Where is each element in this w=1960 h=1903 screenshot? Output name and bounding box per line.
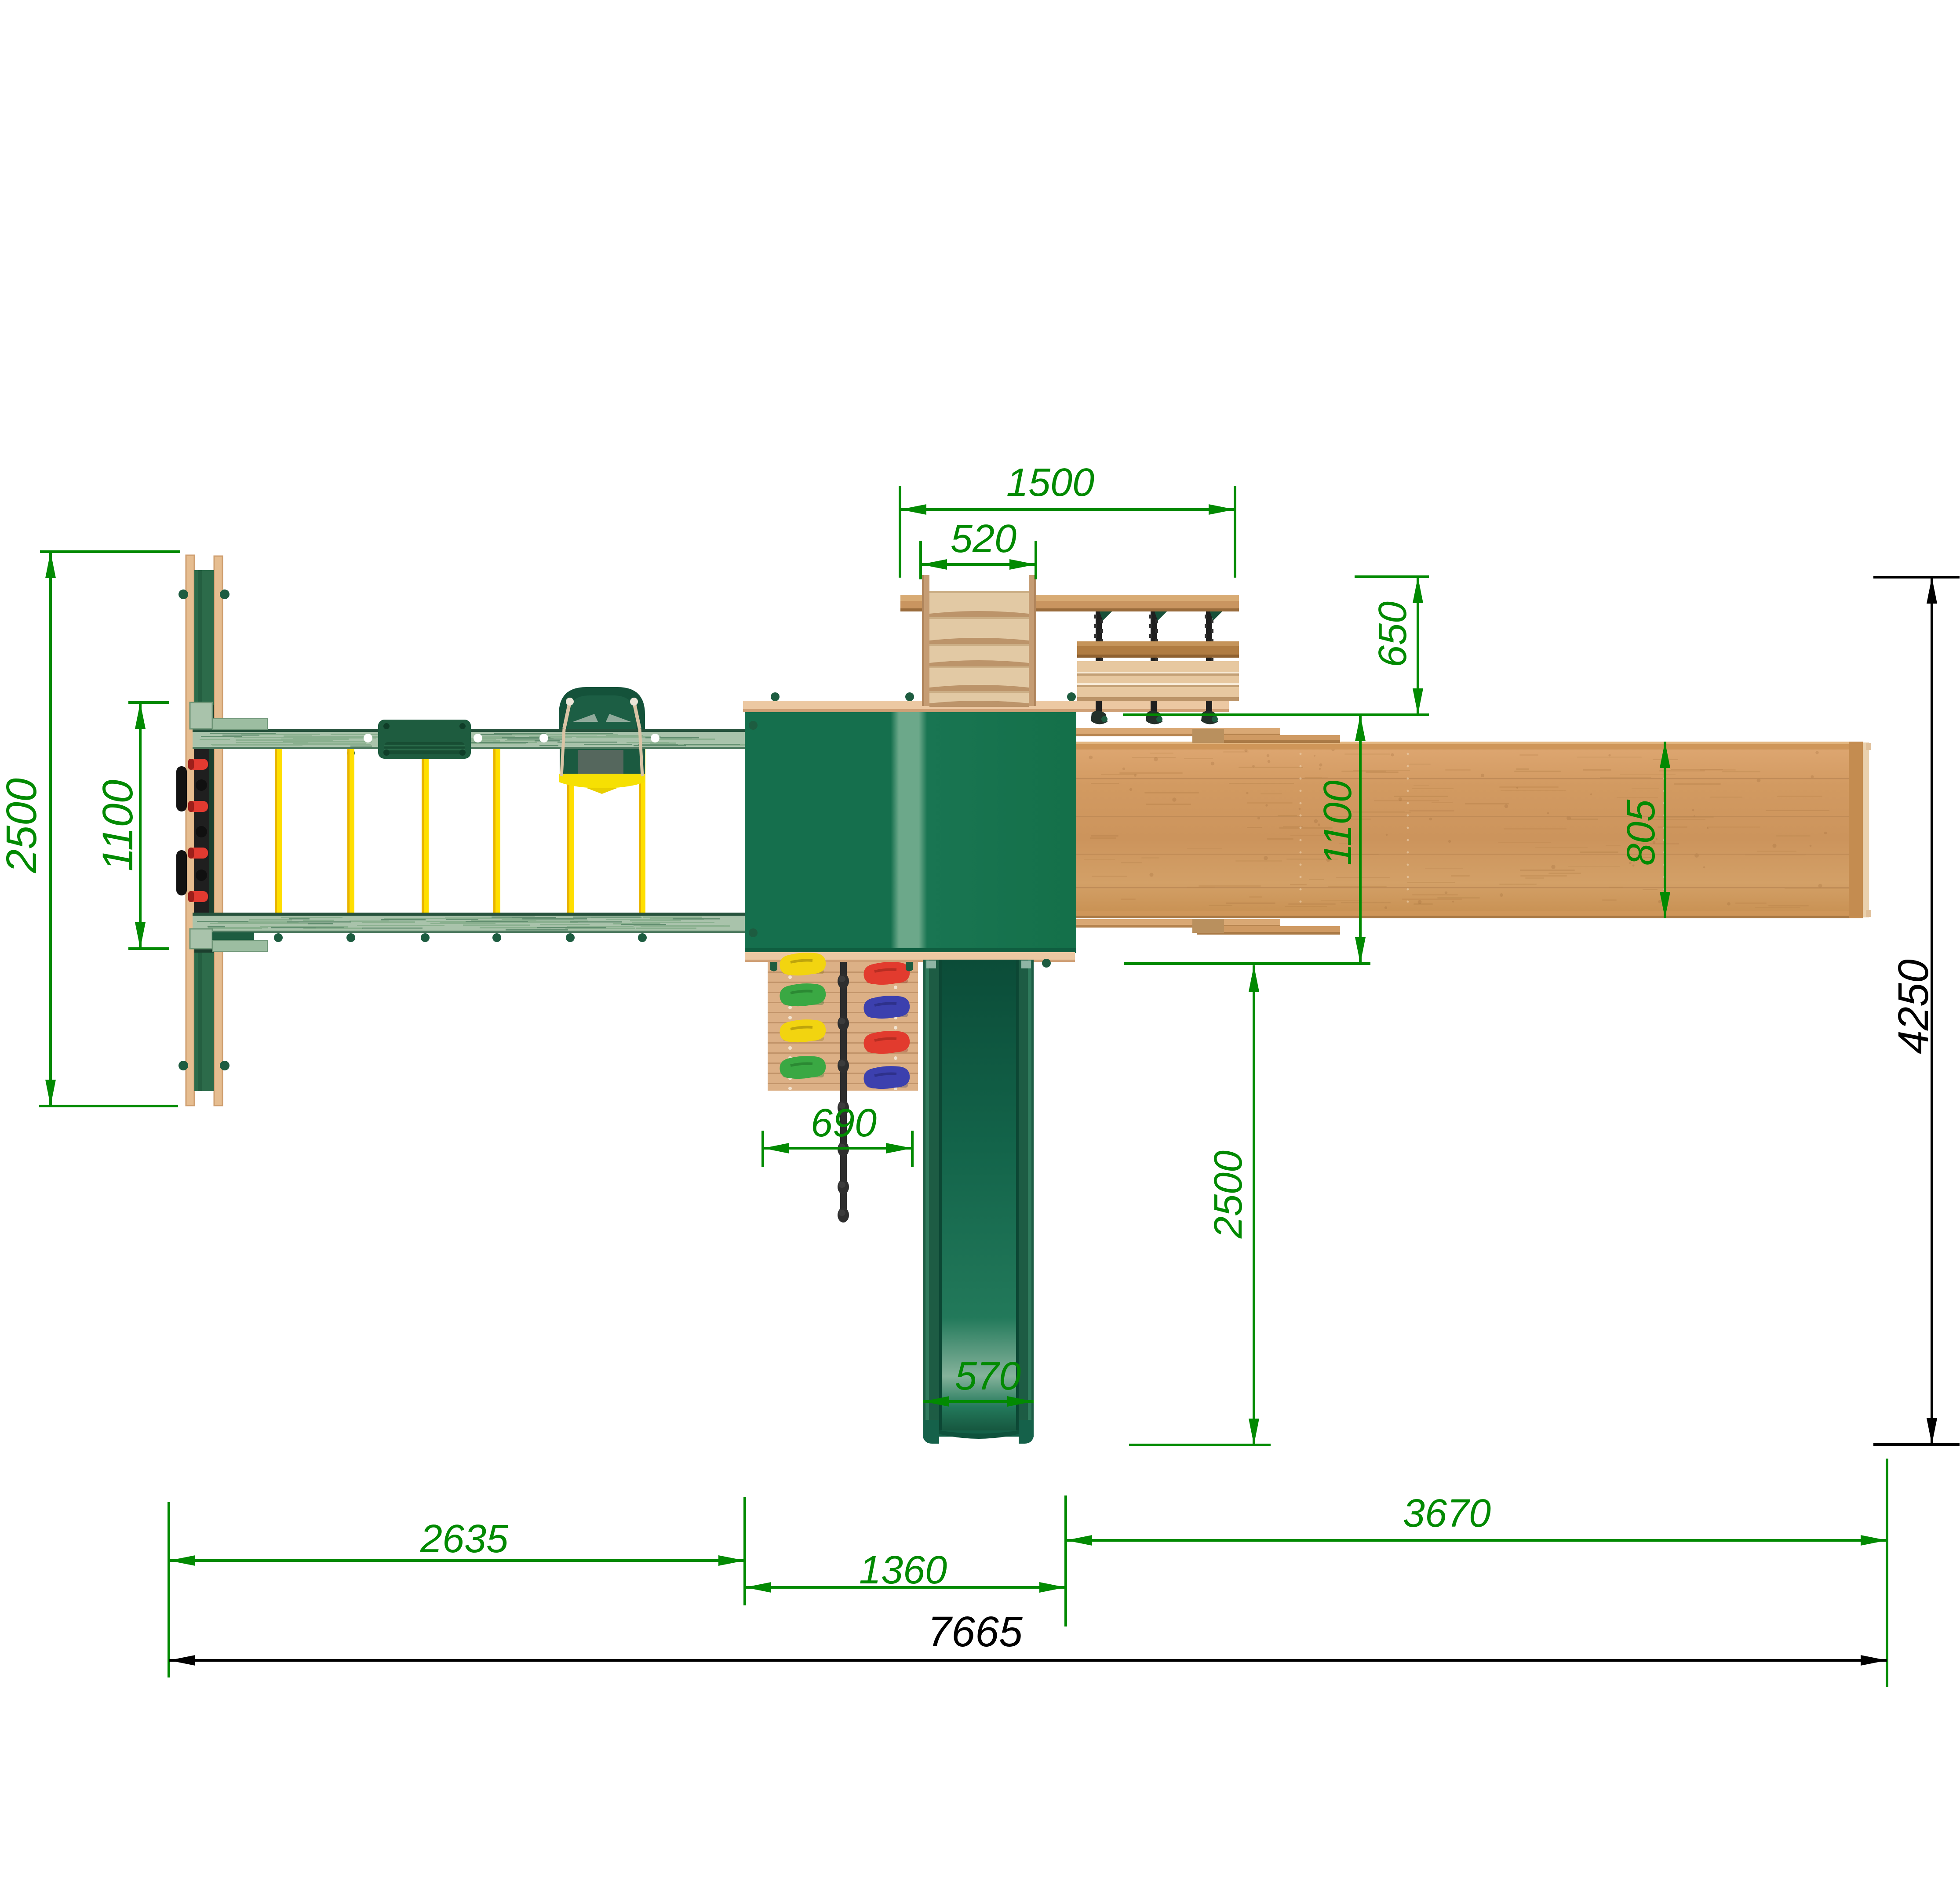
svg-text:1100: 1100 (1316, 780, 1360, 866)
svg-text:805: 805 (1619, 799, 1663, 866)
svg-text:4250: 4250 (1889, 959, 1937, 1054)
svg-text:1360: 1360 (859, 1548, 947, 1592)
svg-text:520: 520 (951, 517, 1016, 561)
svg-text:570: 570 (955, 1354, 1021, 1398)
svg-text:690: 690 (811, 1101, 877, 1145)
svg-text:2500: 2500 (1206, 1150, 1250, 1239)
svg-text:2500: 2500 (0, 778, 45, 873)
svg-text:650: 650 (1371, 601, 1415, 667)
svg-text:7665: 7665 (928, 1608, 1023, 1656)
svg-text:3670: 3670 (1403, 1492, 1491, 1535)
svg-text:1100: 1100 (94, 780, 142, 872)
svg-text:2635: 2635 (420, 1517, 509, 1561)
svg-text:1500: 1500 (1006, 461, 1094, 505)
